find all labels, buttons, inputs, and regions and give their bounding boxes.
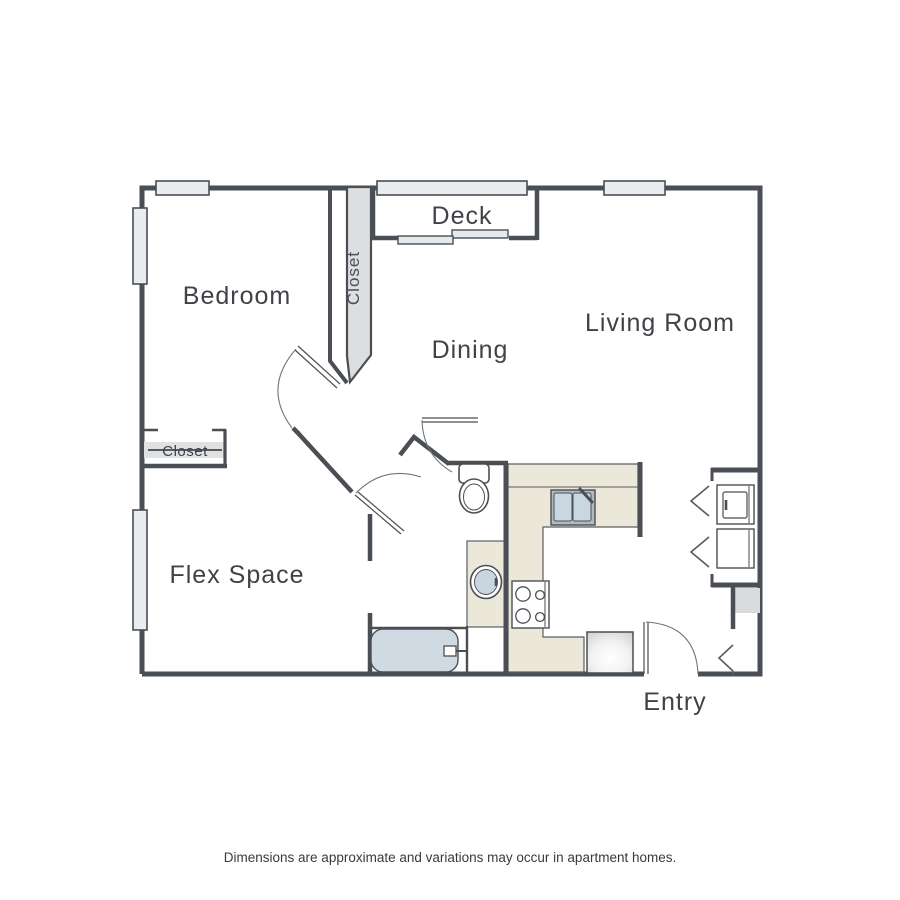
bedroom-label: Bedroom (183, 282, 291, 310)
entry-area (719, 586, 760, 676)
dining-label: Dining (432, 336, 509, 364)
entry-label: Entry (643, 688, 706, 716)
living-room-window (604, 181, 665, 195)
bifold-doors (691, 486, 709, 567)
toilet (459, 464, 489, 513)
entry-closet-bifold (719, 645, 733, 676)
bedroom-closet-label: Closet (344, 251, 363, 305)
kitchen (506, 462, 640, 674)
bedroom-left-window (133, 208, 147, 284)
exterior-walls (142, 188, 760, 674)
refrigerator (587, 632, 633, 673)
vanity (467, 541, 506, 627)
living-room-label: Living Room (585, 309, 735, 337)
tub-faucet (444, 646, 456, 656)
flex-closet-label: Closet (162, 443, 208, 460)
entry-door (644, 622, 698, 674)
wall-chase (734, 588, 760, 613)
flex-space-label: Flex Space (169, 561, 304, 589)
kitchen-sink (551, 489, 595, 525)
floor-plan-drawing: Deck Bedroom Closet Dining Living Room C… (0, 0, 900, 900)
flex-space-window (133, 510, 147, 630)
bedroom-top-window (156, 181, 209, 195)
flex-space-door (355, 473, 421, 534)
washer (717, 485, 754, 524)
laundry-closet (691, 468, 760, 587)
deck-label: Deck (432, 202, 493, 230)
bathroom (368, 464, 506, 676)
sliding-door (398, 230, 508, 244)
dryer (717, 529, 754, 568)
deck-railing-window (377, 181, 527, 195)
disclaimer-text: Dimensions are approximate and variation… (224, 850, 676, 865)
stove (512, 581, 549, 628)
bathtub (371, 629, 466, 672)
floor-plan-page: Deck Bedroom Closet Dining Living Room C… (0, 0, 900, 900)
